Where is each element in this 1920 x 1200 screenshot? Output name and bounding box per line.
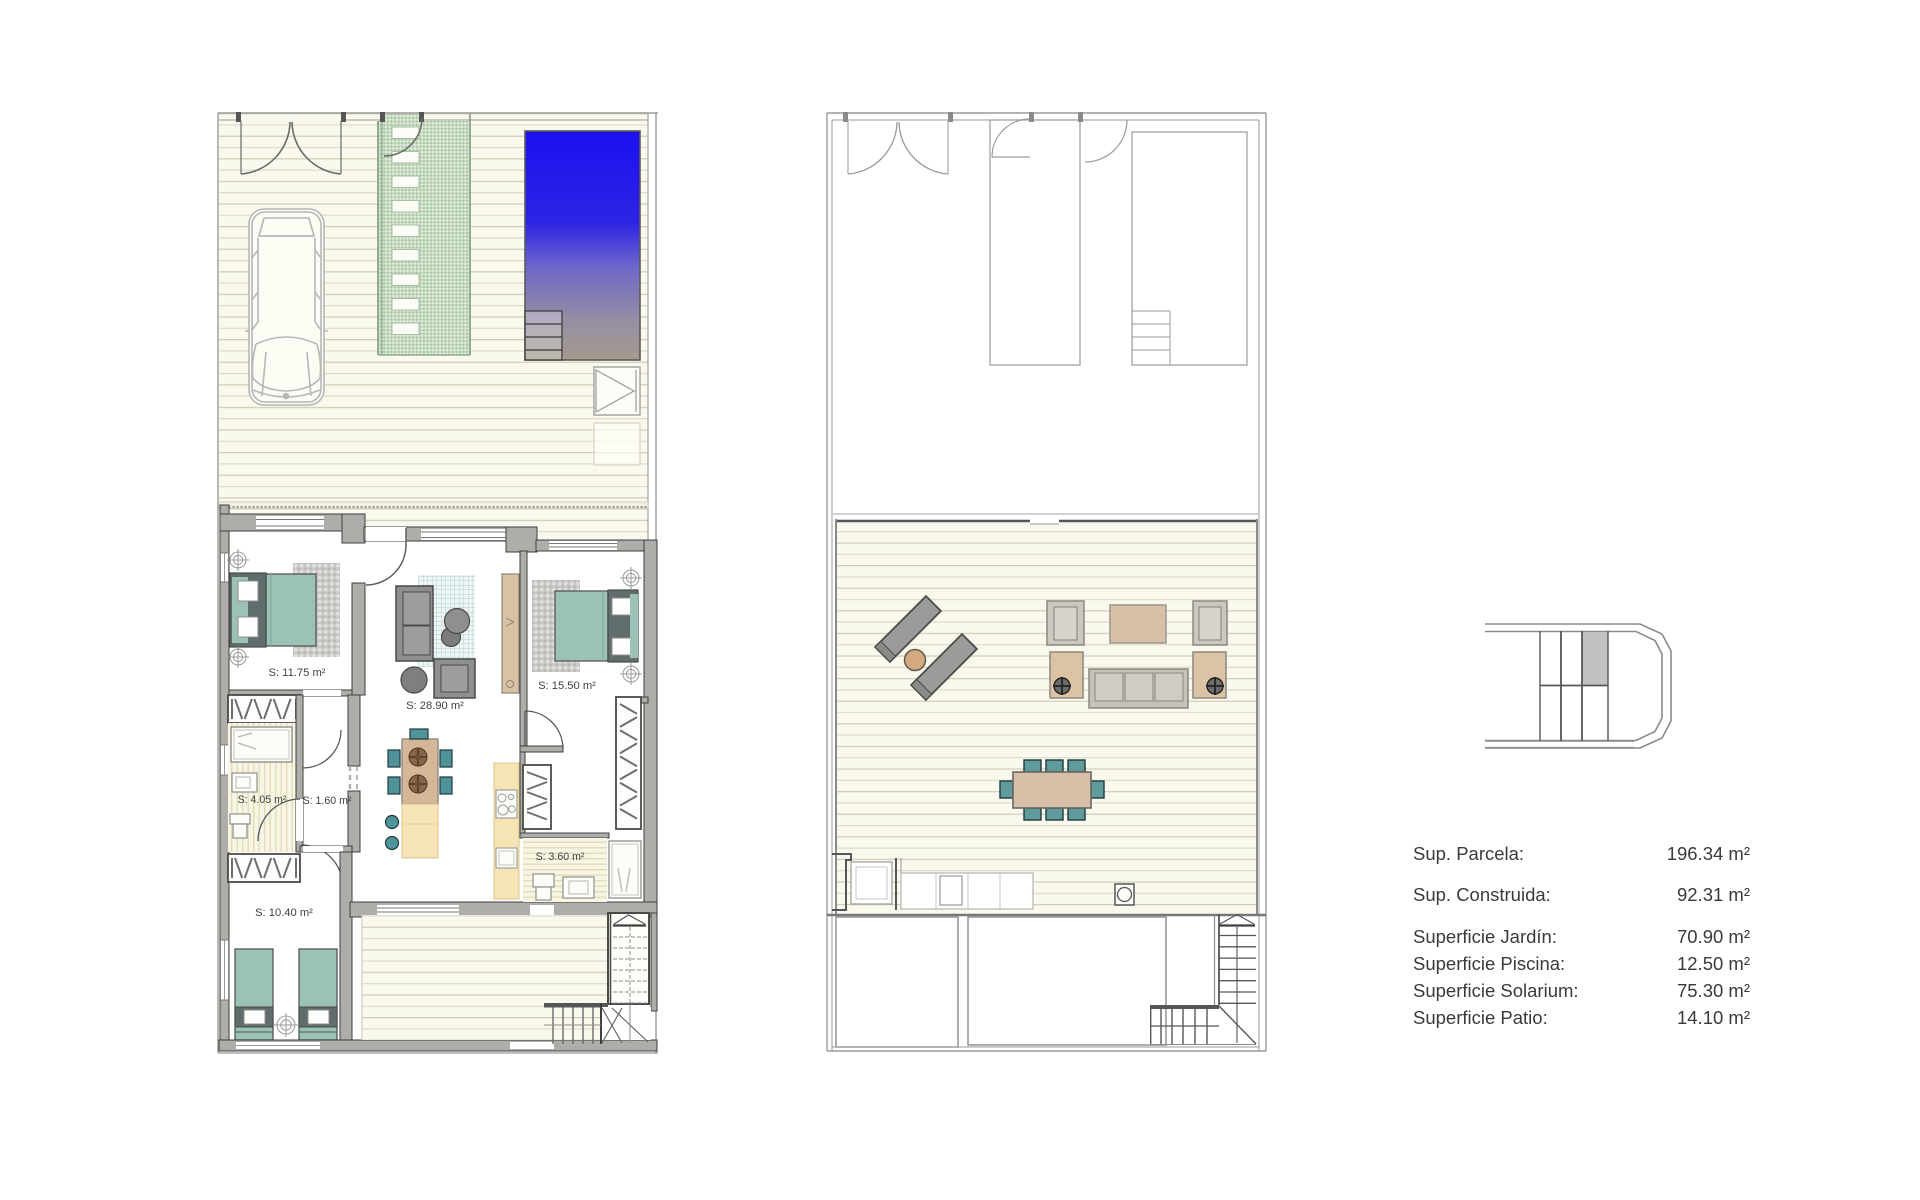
svg-text:14.10 m²: 14.10 m² <box>1677 1007 1750 1028</box>
svg-text:S: 15.50 m²: S: 15.50 m² <box>538 680 596 692</box>
svg-text:196.34 m²: 196.34 m² <box>1667 843 1750 864</box>
svg-text:S: 10.40 m²: S: 10.40 m² <box>255 907 313 919</box>
svg-text:S: 3.60 m²: S: 3.60 m² <box>536 851 585 863</box>
svg-text:Superficie Jardín:: Superficie Jardín: <box>1413 926 1557 947</box>
svg-text:S: 11.75 m²: S: 11.75 m² <box>269 667 326 679</box>
svg-text:Superficie Solarium:: Superficie Solarium: <box>1413 980 1579 1001</box>
svg-text:75.30 m²: 75.30 m² <box>1677 980 1750 1001</box>
svg-text:Superficie Piscina:: Superficie Piscina: <box>1413 953 1565 974</box>
svg-text:S: 4.05 m²: S: 4.05 m² <box>238 794 287 806</box>
svg-text:Sup. Parcela:: Sup. Parcela: <box>1413 843 1524 864</box>
svg-text:92.31 m²: 92.31 m² <box>1677 884 1750 905</box>
svg-text:12.50 m²: 12.50 m² <box>1677 953 1750 974</box>
svg-text:S: 1.60 m²: S: 1.60 m² <box>303 795 352 807</box>
svg-text:Superficie Patio:: Superficie Patio: <box>1413 1007 1548 1028</box>
svg-text:S: 28.90 m²: S: 28.90 m² <box>406 700 464 712</box>
svg-text:70.90 m²: 70.90 m² <box>1677 926 1750 947</box>
svg-text:Sup. Construida:: Sup. Construida: <box>1413 884 1551 905</box>
